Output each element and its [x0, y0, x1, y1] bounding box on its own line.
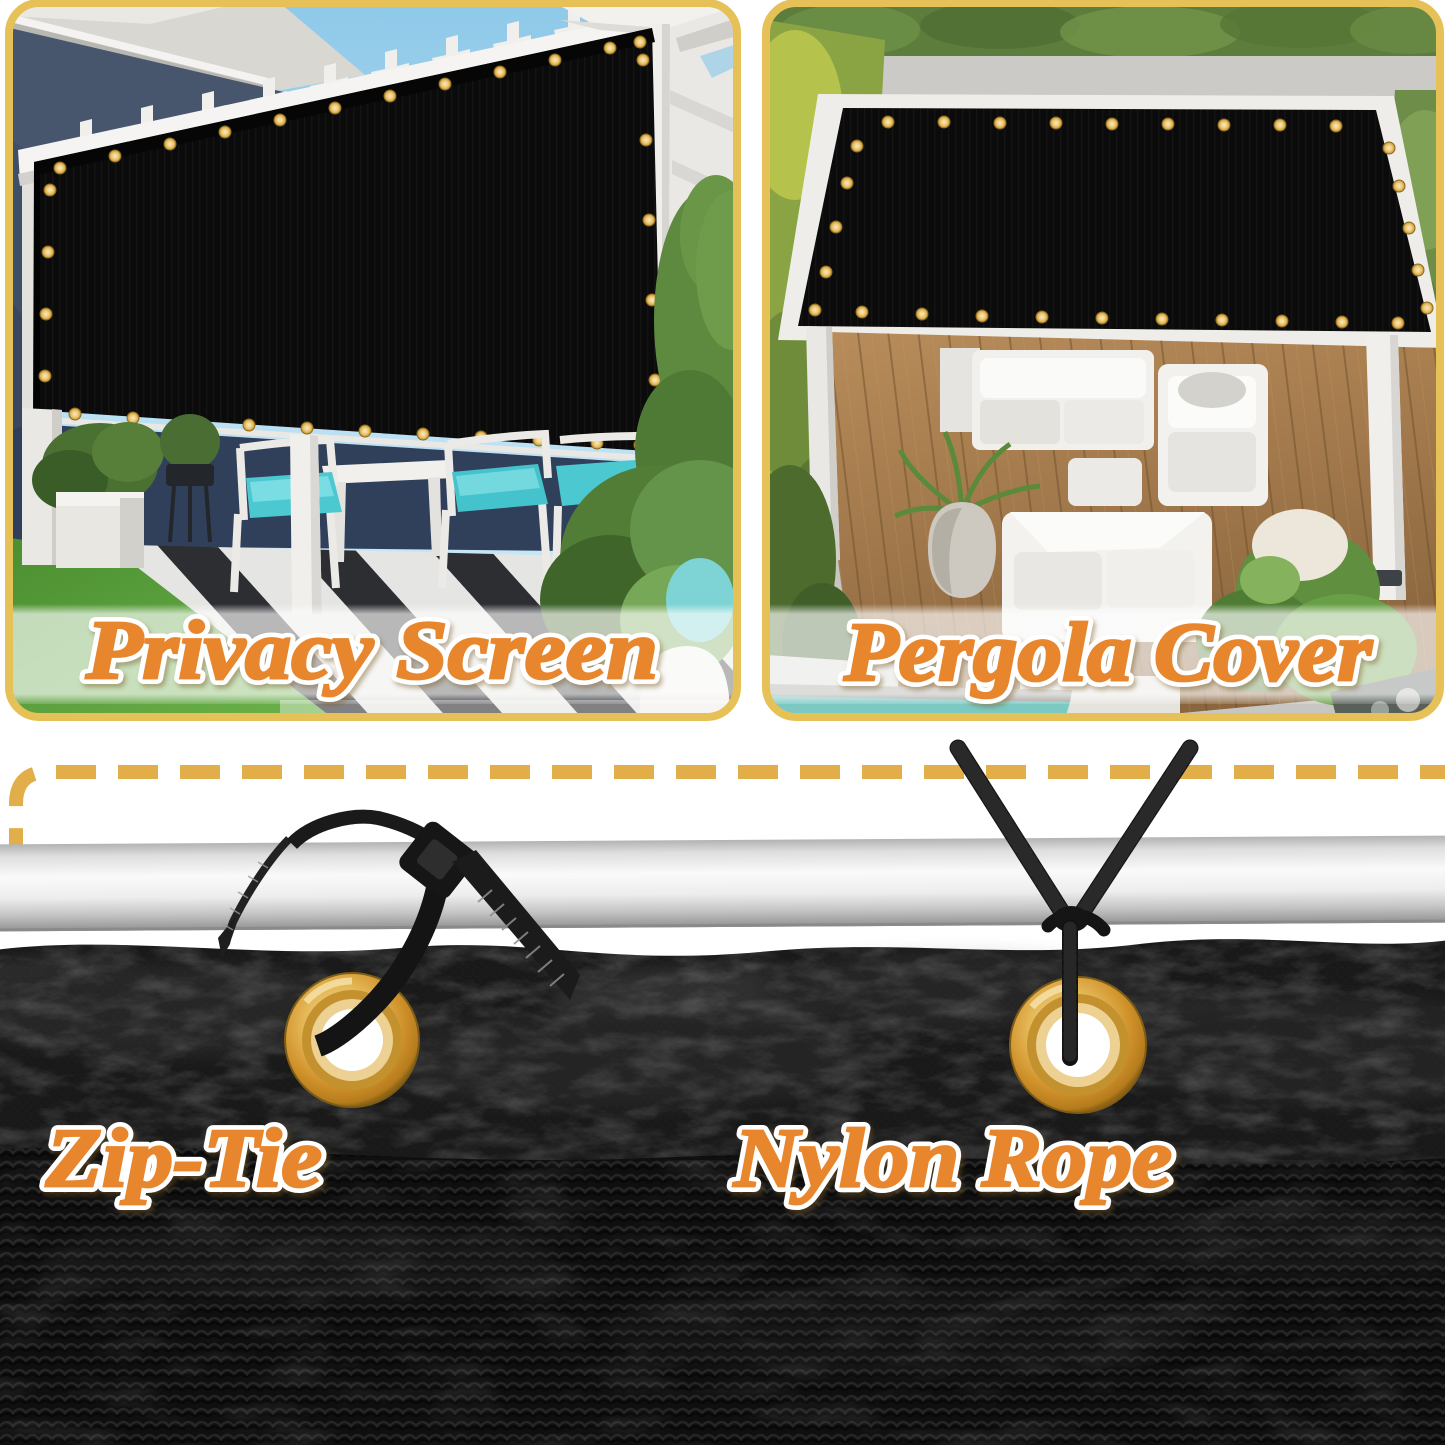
svg-text:Zip-Tie: Zip-Tie — [45, 1112, 322, 1205]
svg-text:Pergola Cover: Pergola Cover — [843, 606, 1373, 699]
svg-text:Nylon Rope: Nylon Rope — [733, 1112, 1172, 1205]
svg-text:Privacy Screen: Privacy Screen — [85, 604, 658, 697]
